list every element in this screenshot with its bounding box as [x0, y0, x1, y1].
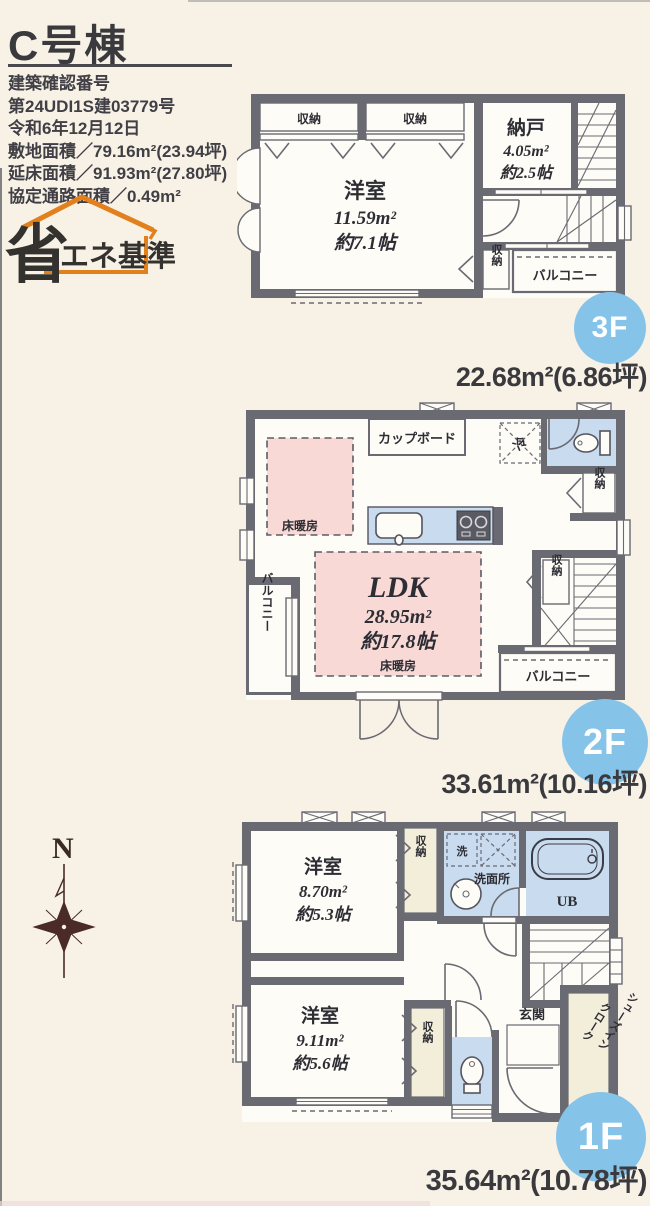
washroom-label: 洗面所	[474, 871, 510, 886]
floor2-right-window	[617, 520, 630, 555]
balcony-label: バルコニー	[526, 669, 591, 684]
western-room-area: 8.70m²	[299, 882, 348, 901]
entrance-label: 玄関	[519, 1007, 545, 1022]
scan-edge-top	[188, 0, 650, 2]
cupboard-label: カップボード	[378, 431, 456, 446]
closet-label: 収納	[297, 111, 321, 126]
toilet-step	[452, 1105, 492, 1118]
western-room-area: 9.11m²	[296, 1031, 344, 1050]
info-line-confirmation: 建築確認番号	[8, 73, 248, 96]
toilet-icon	[574, 431, 610, 455]
compass-north-label: N	[52, 832, 74, 865]
closet-label: 収納	[414, 835, 427, 858]
western-room-area: 11.59m²	[334, 208, 397, 229]
western-room-label: 洋室	[304, 855, 342, 878]
floor-heating-label: 床暖房	[380, 658, 416, 673]
kitchen-counter	[368, 507, 493, 545]
floorplan-2f: カップボード 冷 収納 床暖房 LDK 28.95m² 約17.8帖 床暖房 収…	[236, 402, 650, 747]
floor-area-2f: 33.61m²(10.16坪)	[247, 762, 647, 801]
floor1-top-windows	[302, 812, 565, 823]
balcony-label: バルコニー	[260, 572, 274, 632]
closet-label: 収納	[550, 554, 563, 577]
info-line-land-area: 敷地面積／79.16m²(23.94坪)	[8, 141, 248, 164]
compass: N	[16, 826, 116, 984]
french-doors	[356, 692, 442, 739]
floor-heating-label: 床暖房	[282, 518, 318, 533]
ldk-label: LDK	[367, 571, 430, 604]
closet-label: 収納	[593, 467, 606, 490]
info-line-date: 令和6年12月12日	[8, 118, 248, 141]
storage-room-label: 納戸	[507, 116, 545, 139]
scan-edge-bottom	[0, 1201, 430, 1206]
western-room-label: 洋室	[301, 1004, 339, 1027]
floor-area-1f: 35.64m²(10.78坪)	[227, 1157, 647, 1199]
floor1-right-window	[610, 938, 622, 984]
western-room-tatami: 約5.6帖	[292, 1054, 350, 1073]
closet-label: 収納	[490, 244, 503, 267]
floor3-left-doors	[237, 148, 260, 252]
eco-logo-text: エネ基準	[60, 239, 175, 273]
bath-label: UB	[557, 894, 578, 910]
closet-label: 収納	[421, 1021, 434, 1044]
western-room-tatami: 約5.3帖	[295, 905, 353, 924]
floor-badge-3f: 3F	[574, 292, 646, 364]
floor-area-3f: 22.68m²(6.86坪)	[247, 355, 647, 394]
eco-standard-logo: 省 エネ基準	[0, 192, 175, 322]
floorplan-3f: 収納 収納 納戸 4.05m² 約2.5帖 洋室 11.59m² 約7.1帖	[237, 90, 649, 312]
info-line-floor-area: 延床面積／91.93m²(27.80坪)	[8, 163, 248, 186]
toilet-icon	[461, 1057, 483, 1093]
western-room-label: 洋室	[344, 179, 386, 203]
compass-rose-icon	[34, 864, 94, 978]
entrance-step	[507, 1025, 559, 1065]
title-underline	[8, 64, 232, 67]
storage-room-area: 4.05m²	[502, 143, 549, 160]
balcony-label: バルコニー	[533, 268, 598, 283]
closet-label: 収納	[403, 111, 427, 126]
ldk-tatami: 約17.8帖	[361, 630, 439, 653]
building-info: 建築確認番号 第24UDI1S建03779号 令和6年12月12日 敷地面積／7…	[8, 73, 248, 209]
laundry-label: 洗	[457, 844, 468, 858]
western-room-tatami: 約7.1帖	[334, 232, 399, 254]
scan-edge-left	[0, 168, 2, 1206]
info-line-number: 第24UDI1S建03779号	[8, 96, 248, 119]
ldk-area: 28.95m²	[364, 606, 433, 628]
storage-room-tatami: 約2.5帖	[499, 164, 555, 182]
